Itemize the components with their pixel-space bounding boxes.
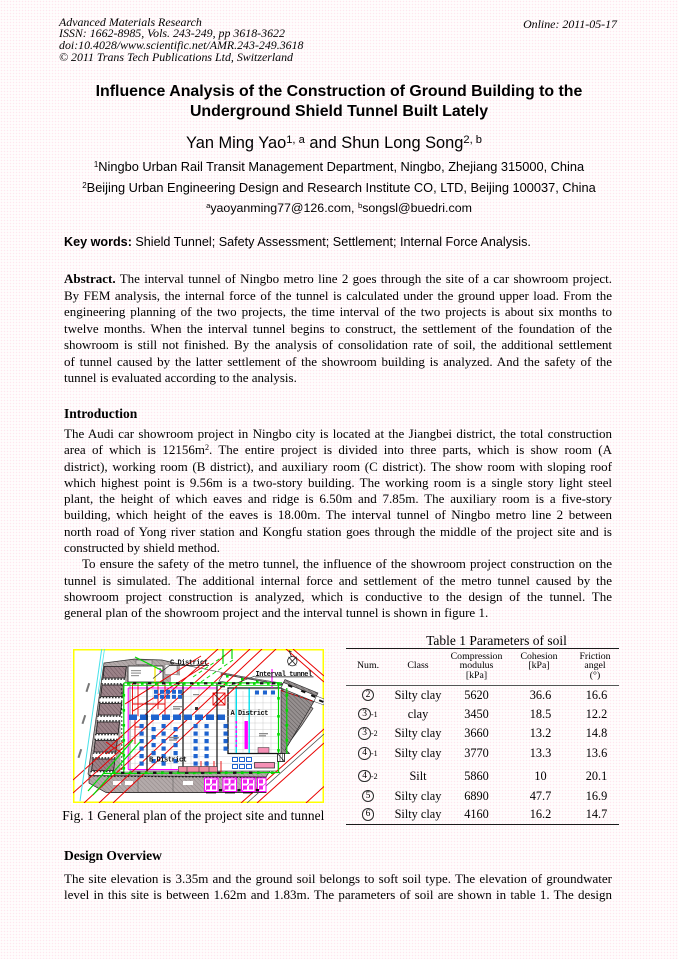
svg-text:Interval tunnel: Interval tunnel — [256, 671, 313, 679]
svg-text:A District: A District — [231, 710, 269, 718]
svg-text:B District: B District — [149, 757, 187, 765]
svg-text:C District: C District — [170, 659, 208, 667]
